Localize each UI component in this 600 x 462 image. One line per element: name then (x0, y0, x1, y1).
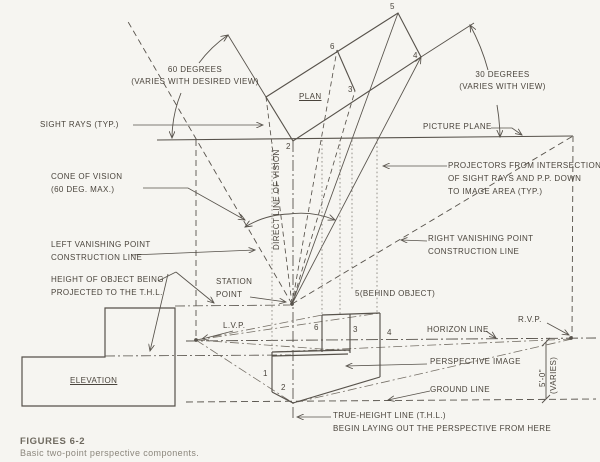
label-plan: PLAN (299, 91, 322, 103)
label-lvp-line2: CONSTRUCTION LINE (51, 251, 151, 264)
label-dim-varies: (VARIES) (549, 342, 560, 394)
figure-6-2-diagram: 60 DEGREES (VARIES WITH DESIRED VIEW) 30… (0, 0, 600, 462)
plan-point-5: 5 (390, 2, 394, 11)
plan-point-2: 2 (286, 142, 290, 151)
label-horizon-line: HORIZON LINE (427, 324, 489, 336)
label-rvp-line2: CONSTRUCTION LINE (428, 245, 533, 258)
rvp-dot (569, 336, 573, 340)
label-projectors-line2: OF SIGHT RAYS AND P.P. DOWN (448, 172, 600, 185)
elevation-view (22, 308, 175, 406)
cone-of-vision-arc (245, 213, 335, 227)
label-station-line2: POINT (216, 288, 252, 301)
label-60-degrees-line2: (VARIES WITH DESIRED VIEW) (115, 76, 275, 88)
label-rvp-line1: RIGHT VANISHING POINT (428, 232, 533, 245)
plan-point-6: 6 (330, 42, 334, 51)
label-60-degrees: 60 DEGREES (VARIES WITH DESIRED VIEW) (115, 64, 275, 88)
label-rvp: R.V.P. (518, 314, 542, 326)
label-projectors: PROJECTORS FROM INTERSECTION OF SIGHT RA… (448, 159, 600, 198)
label-lvp-line1: LEFT VANISHING POINT (51, 238, 151, 251)
label-picture-plane: PICTURE PLANE (423, 121, 492, 133)
point-markers (194, 302, 573, 342)
label-elevation: ELEVATION (70, 375, 117, 387)
label-thl-line2: BEGIN LAYING OUT THE PERSPECTIVE FROM HE… (333, 422, 551, 435)
label-perspective-image: PERSPECTIVE IMAGE (430, 356, 521, 368)
label-cone-of-vision: CONE OF VISION (60 DEG. MAX.) (51, 170, 122, 196)
label-sight-rays: SIGHT RAYS (TYP.) (40, 119, 119, 131)
label-direct-line-of-vision: DIRECT LINE OF VISION (272, 148, 286, 250)
label-30-degrees: 30 DEGREES (VARIES WITH VIEW) (445, 69, 560, 93)
plan-point-4: 4 (413, 51, 417, 60)
label-height-of-object: HEIGHT OF OBJECT BEING PROJECTED TO THE … (51, 273, 164, 299)
label-height-line2: PROJECTED TO THE T.H.L. (51, 286, 164, 299)
persp-point-2: 2 (281, 383, 285, 392)
persp-point-3: 3 (353, 325, 357, 334)
label-projectors-line3: TO IMAGE AREA (TYP.) (448, 185, 600, 198)
station-point-dot (290, 302, 294, 306)
label-height-line1: HEIGHT OF OBJECT BEING (51, 273, 164, 286)
figure-caption: Basic two-point perspective components. (20, 448, 199, 458)
label-behind-object: 5(BEHIND OBJECT) (355, 288, 435, 300)
label-cone-line2: (60 DEG. MAX.) (51, 183, 122, 196)
label-cone-line1: CONE OF VISION (51, 170, 122, 183)
projector-lines (272, 138, 377, 352)
persp-point-6: 6 (314, 323, 318, 332)
label-true-height-line: TRUE-HEIGHT LINE (T.H.L.) BEGIN LAYING O… (333, 409, 551, 435)
lvp-dot (194, 338, 198, 342)
label-left-vp-construction: LEFT VANISHING POINT CONSTRUCTION LINE (51, 238, 151, 264)
label-station-line1: STATION (216, 275, 252, 288)
label-dim-height: 5'-0" (538, 349, 549, 387)
label-30-degrees-line1: 30 DEGREES (445, 69, 560, 81)
label-ground-line: GROUND LINE (430, 384, 490, 396)
sight-rays (266, 13, 421, 304)
persp-point-1: 1 (263, 369, 267, 378)
label-thl-line1: TRUE-HEIGHT LINE (T.H.L.) (333, 409, 551, 422)
label-30-degrees-line2: (VARIES WITH VIEW) (445, 81, 560, 93)
label-station-point: STATION POINT (216, 275, 252, 301)
label-projectors-line1: PROJECTORS FROM INTERSECTION (448, 159, 600, 172)
plan-point-3: 3 (348, 85, 352, 94)
height-projection-lines (105, 305, 291, 356)
label-right-vp-construction: RIGHT VANISHING POINT CONSTRUCTION LINE (428, 232, 533, 258)
figure-title: FIGURES 6-2 (20, 436, 85, 447)
label-lvp: L.V.P. (223, 320, 245, 332)
persp-point-4: 4 (387, 328, 391, 337)
label-60-degrees-line1: 60 DEGREES (115, 64, 275, 76)
